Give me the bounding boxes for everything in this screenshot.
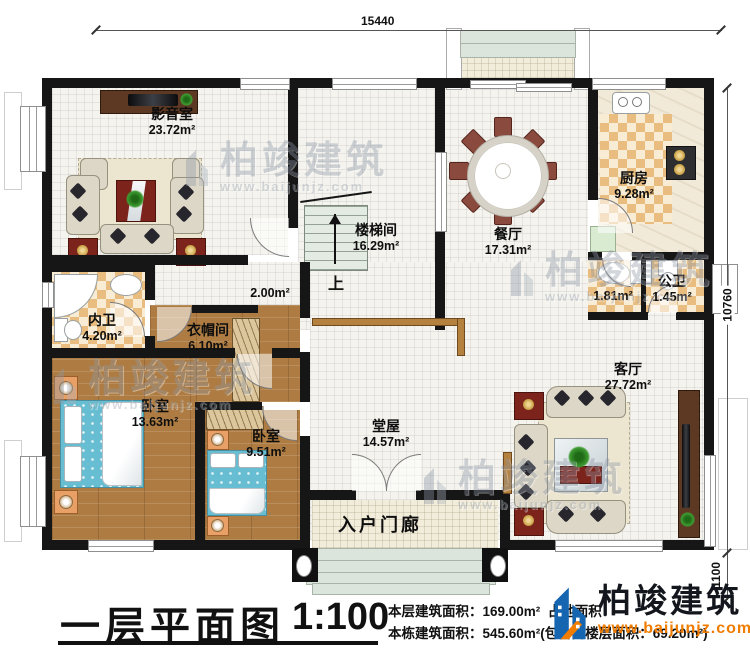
brand-site: www.baijunjz.com <box>598 621 750 637</box>
wall-segment <box>500 490 510 540</box>
brand-name: 柏竣建筑 <box>598 584 750 617</box>
toilet <box>64 320 82 340</box>
wall-segment <box>588 312 648 320</box>
window <box>42 282 54 308</box>
room-label-living: 客厅 27.72m² <box>605 362 652 392</box>
porch-step <box>312 583 490 595</box>
wall-segment <box>676 312 714 320</box>
plant <box>680 512 695 527</box>
sofa <box>66 175 100 235</box>
dining-table-center <box>495 163 511 179</box>
window <box>592 78 666 90</box>
wall-segment <box>300 352 310 402</box>
bay-window <box>20 106 46 172</box>
room-label-bedroom2: 卧室 9.51m² <box>246 429 286 459</box>
room-label-cloakroom: 衣帽间 6.10m² <box>187 323 229 353</box>
wall-segment <box>588 88 598 200</box>
room-label-small-hall: 2.00m² <box>250 286 290 300</box>
wall-segment <box>641 260 646 312</box>
room-label-dining: 餐厅 17.31m² <box>485 227 532 257</box>
wall-segment <box>272 348 300 358</box>
wall-segment <box>632 252 714 260</box>
wall-segment <box>435 88 445 152</box>
room-label-bedroom1: 卧室 13.63m² <box>132 399 179 429</box>
brand-logo: 柏竣建筑 www.baijunjz.com <box>546 584 750 644</box>
window <box>88 540 154 552</box>
wall-segment <box>416 490 500 500</box>
wall-segment <box>52 262 155 272</box>
porch-column-base <box>490 555 506 577</box>
side-table-lamp <box>523 399 534 410</box>
rear-porch-step <box>460 43 576 58</box>
window <box>555 540 663 552</box>
room-label-stairwell: 楼梯间 16.29m² <box>353 223 400 253</box>
dining-chair <box>449 162 469 180</box>
tv <box>682 424 690 508</box>
pillow <box>64 446 82 482</box>
side-table-lamp <box>523 515 534 526</box>
lamp <box>59 495 73 509</box>
window <box>240 78 290 90</box>
wood-half-wall <box>312 318 465 326</box>
dining-chair <box>494 117 512 137</box>
rear-sliding-door <box>516 83 572 92</box>
wall-segment <box>145 336 155 348</box>
room-label-media: 影音室 23.72m² <box>149 107 196 137</box>
bath-sink <box>110 274 142 296</box>
table-tray <box>560 466 602 484</box>
wall-segment <box>288 88 298 228</box>
window <box>332 78 417 90</box>
stove-burner <box>674 164 685 175</box>
wall-segment <box>300 262 310 318</box>
wood-half-wall <box>457 318 465 356</box>
title-underline <box>58 641 378 645</box>
wall-segment <box>300 436 310 540</box>
dimension-label-right: 10760 <box>721 285 735 324</box>
pillow <box>210 453 236 468</box>
wall-segment <box>42 540 310 550</box>
sofa <box>546 500 626 534</box>
room-label-public-bath: 公卫 1.45m² <box>652 274 692 304</box>
wall-segment <box>192 305 258 313</box>
lamp <box>211 433 224 446</box>
window <box>704 455 716 547</box>
room-label-porch: 入户门廊 <box>338 515 422 535</box>
pillow <box>64 406 82 444</box>
plant <box>126 190 144 208</box>
room-label-main-hall: 堂屋 14.57m² <box>363 419 410 449</box>
tv <box>128 94 178 106</box>
wall-segment <box>588 252 602 260</box>
dimension-line-top <box>95 30 722 31</box>
plant <box>180 93 193 106</box>
porch-column-base <box>296 555 312 577</box>
stove-burner <box>674 150 685 161</box>
stairs-up-arrowhead <box>329 208 341 224</box>
wood-pillar <box>503 452 512 494</box>
sofa <box>100 224 174 254</box>
brand-logo-icon <box>546 584 594 644</box>
rear-porch-tile <box>460 56 574 78</box>
sink-basin <box>632 97 642 107</box>
room-label-wash: 1.81m² <box>593 289 633 303</box>
bed-sheet <box>209 488 265 514</box>
sink-basin <box>618 97 628 107</box>
room-label-kitchen: 厨房 9.28m² <box>614 171 654 201</box>
exterior-outline <box>718 398 748 550</box>
plant <box>568 446 590 468</box>
stairs-up-label: 上 <box>328 270 344 294</box>
lamp <box>59 381 73 395</box>
wall-segment <box>195 402 262 410</box>
wall-segment <box>195 402 205 540</box>
wall-segment <box>310 490 356 500</box>
interior-window <box>435 152 447 232</box>
dimension-label-top: 15440 <box>358 14 397 28</box>
wall-segment <box>435 230 445 330</box>
bay-window <box>20 456 46 527</box>
plan-scale: 1:100 <box>292 596 389 639</box>
lamp <box>211 519 224 532</box>
floor-plan-canvas: 上 <box>0 0 750 653</box>
room-label-private-bath: 内卫 4.20m² <box>82 313 122 343</box>
